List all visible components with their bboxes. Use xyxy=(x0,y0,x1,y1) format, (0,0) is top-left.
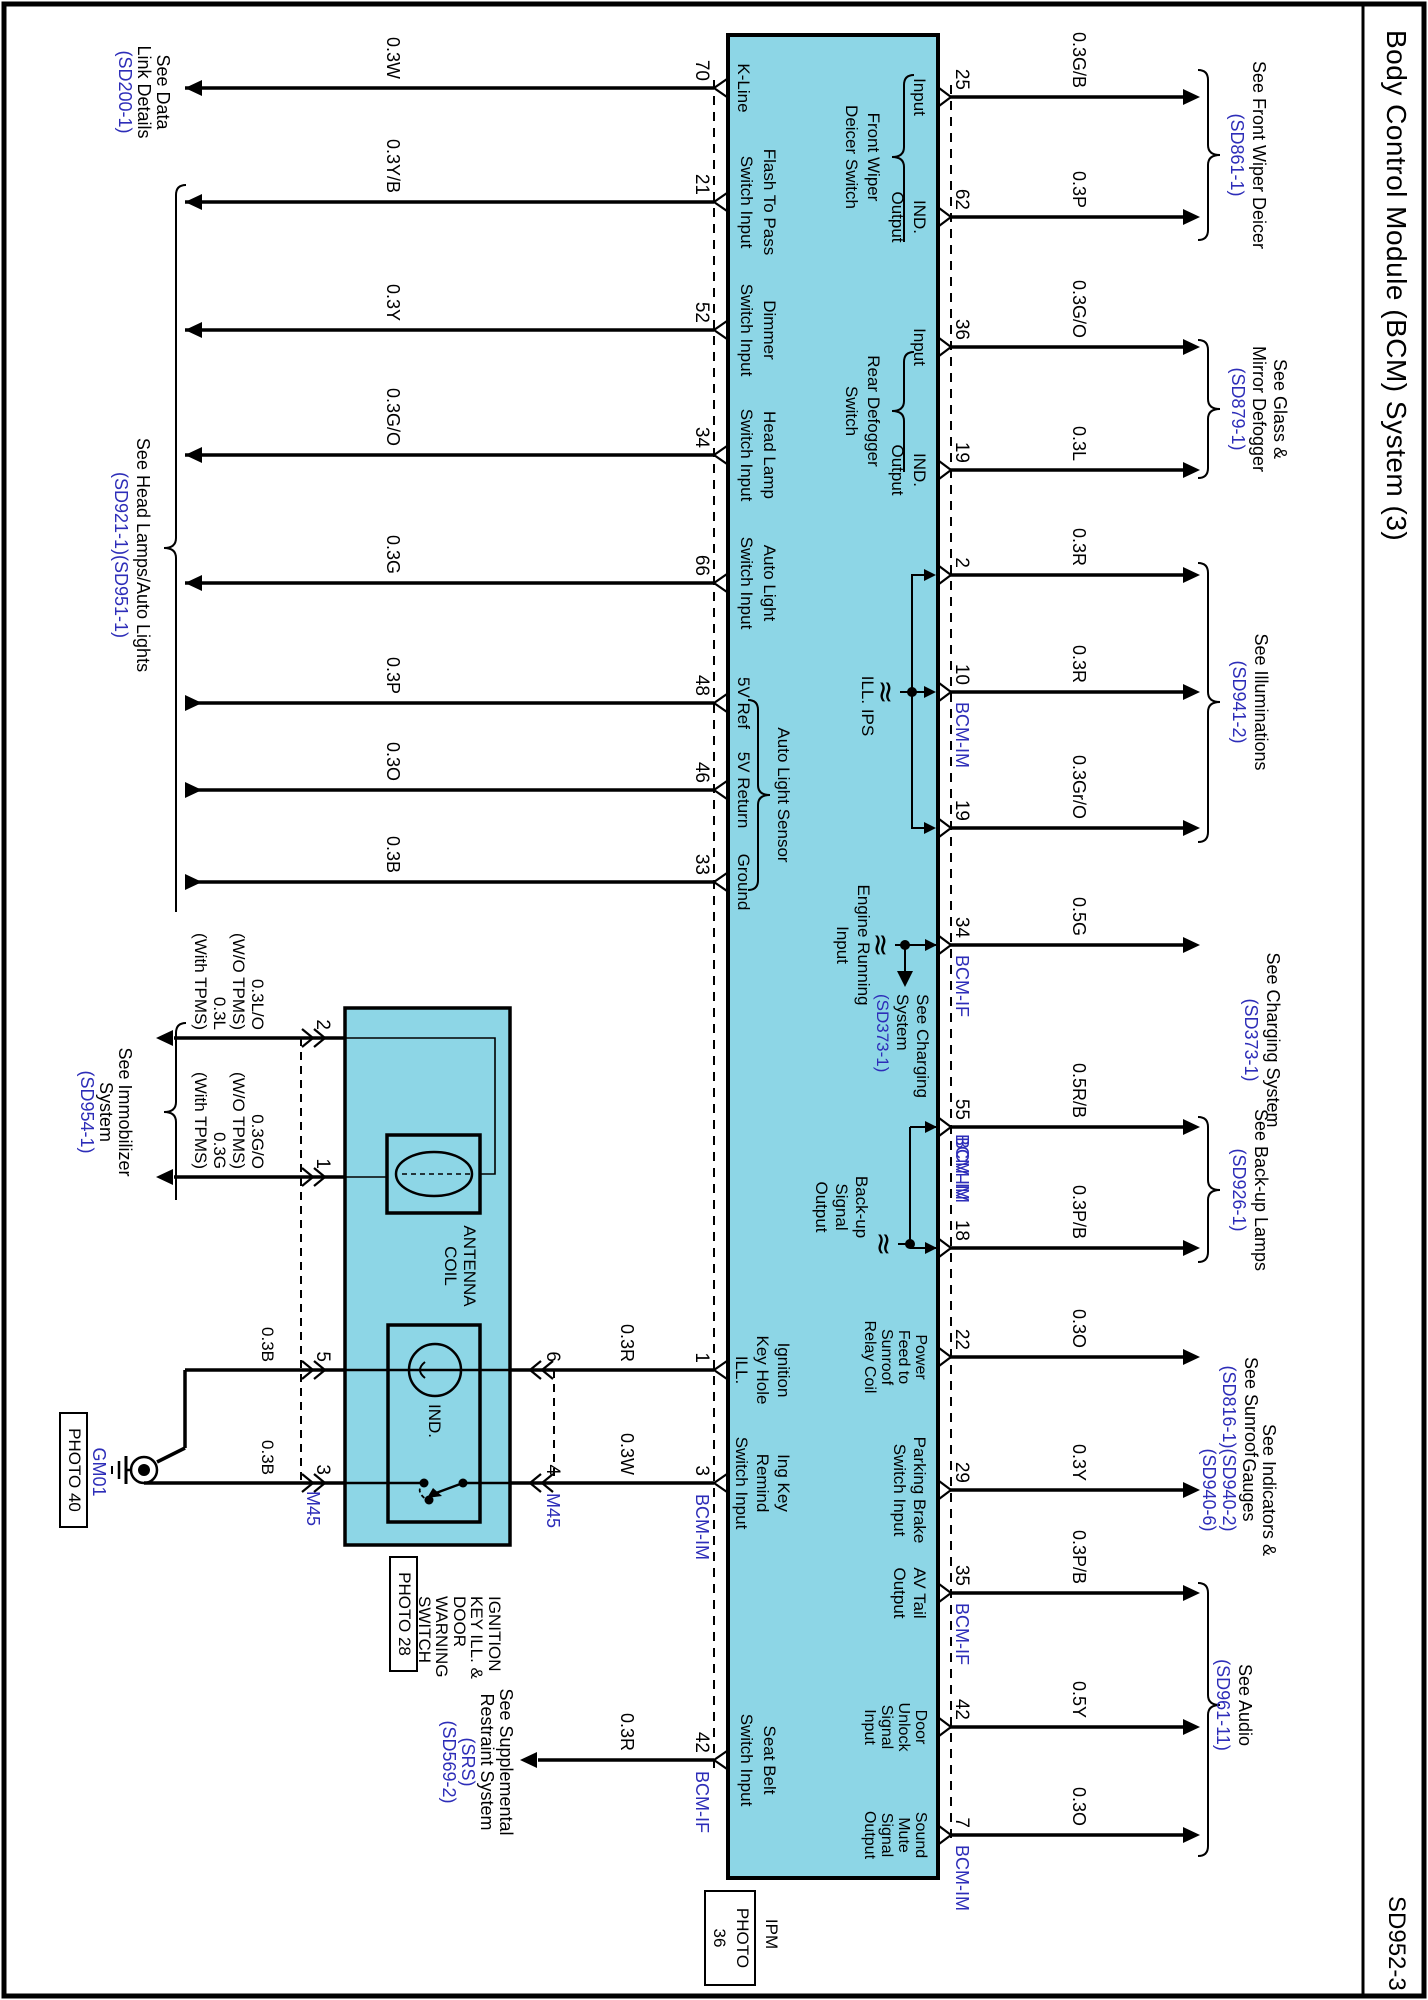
pin-number: 46 xyxy=(691,762,711,783)
shape xyxy=(714,193,727,211)
wire-label: 0.3B xyxy=(258,1440,276,1475)
junction-dot-icon xyxy=(138,1464,150,1476)
pin-function-label: Unlock xyxy=(894,1703,911,1752)
pin-number: 10 xyxy=(951,664,971,685)
wire-label: 0.3P xyxy=(1069,171,1088,208)
arrowhead-icon xyxy=(1183,1827,1200,1843)
wire-label: 0.3R xyxy=(1069,645,1088,683)
module-internal-label: Input xyxy=(833,926,851,964)
wire-label: 0.3G/O xyxy=(248,1114,266,1169)
wire-label: 0.3Y/B xyxy=(383,139,402,193)
connector-label: M45 xyxy=(303,1491,322,1526)
wire-label: 0.3G/O xyxy=(1069,280,1088,338)
pin-function-label: Sunroof xyxy=(877,1329,894,1385)
pin-function-label: Signal xyxy=(877,1705,894,1749)
shape xyxy=(164,185,186,912)
diagram-stage: ≈≈≈ Body Control Module (BCM) System (3)… xyxy=(0,0,1428,2000)
pin-number: 52 xyxy=(691,302,711,323)
pin-function-label: Output xyxy=(888,191,906,242)
see-reference-label: Gauges xyxy=(1239,1458,1258,1521)
photo-label: 36 xyxy=(707,1896,730,1980)
arrowhead-icon xyxy=(185,575,202,591)
module-internal-label: Switch xyxy=(842,386,860,436)
module-internal-label: ILL. IPS xyxy=(858,676,876,736)
see-reference-label: (SD569-2) xyxy=(439,1720,458,1803)
arrowhead-icon xyxy=(1183,1119,1200,1135)
module-internal-label: Back-up xyxy=(852,1176,870,1238)
see-reference-label: (SD921-1)(SD951-1) xyxy=(111,472,130,638)
see-reference-label: See Glass & xyxy=(1270,359,1289,459)
wire-label: 0.5Y xyxy=(1069,1681,1088,1718)
photo-28-box: PHOTO 28 xyxy=(389,1556,418,1672)
see-reference-label: See Back-up Lamps xyxy=(1251,1109,1270,1271)
arrowhead-icon xyxy=(185,874,202,890)
see-reference-label: See Sunroof xyxy=(1241,1357,1260,1457)
pin-function-label: Auto Light xyxy=(760,545,778,622)
arrowhead-icon xyxy=(1183,462,1200,478)
see-reference-label: Link Details xyxy=(134,45,153,138)
shape xyxy=(939,1481,951,1499)
pin-number: 34 xyxy=(691,427,711,448)
ind-bulb-label: IND. xyxy=(425,1404,443,1438)
wire-label: 0.3G/B xyxy=(1069,32,1088,88)
see-reference-label: See Illuminations xyxy=(1251,633,1270,770)
wire xyxy=(157,1448,185,1462)
wire-label: 0.3R xyxy=(1069,528,1088,566)
page-title: Body Control Module (BCM) System (3) xyxy=(1380,30,1412,541)
pin-number: 19 xyxy=(951,442,971,463)
ignition-switch-assembly-box xyxy=(345,1008,510,1545)
shape xyxy=(714,1361,727,1379)
see-reference-label: See Supplemental xyxy=(496,1688,515,1835)
antenna-coil-label: COIL xyxy=(441,1246,459,1286)
see-reference-label: See Front Wiper Deicer xyxy=(1249,61,1268,249)
pin-function-label: Input xyxy=(860,1709,877,1745)
shape xyxy=(939,936,951,954)
pin-function-label: Switch Input xyxy=(737,156,755,249)
pin-function-label: Feed to xyxy=(894,1330,911,1384)
see-reference-label: (SD816-1) xyxy=(1219,1365,1238,1448)
pin-number: 35 xyxy=(951,1565,971,1586)
arrowhead-icon xyxy=(185,695,202,711)
wire-label: 0.3G xyxy=(383,535,402,574)
pin-function-label: Switch Input xyxy=(737,409,755,502)
pin-number: 1 xyxy=(691,1352,711,1363)
shape xyxy=(714,321,727,339)
wire-label: (With TPMS) xyxy=(191,1072,209,1169)
arrowhead-icon xyxy=(185,447,202,463)
shape xyxy=(714,781,727,799)
see-reference-label: (SD941-2) xyxy=(1229,660,1248,743)
wire-label: 0.3O xyxy=(1069,1309,1088,1348)
pin-number: 18 xyxy=(951,1220,971,1241)
see-reference-label: See Data xyxy=(153,54,172,129)
pin-function-label: Dimmer xyxy=(760,300,778,360)
arrowhead-icon xyxy=(156,1030,173,1046)
module-internal-label: Deicer Switch xyxy=(842,105,860,209)
shape xyxy=(714,79,727,97)
pin-function-label: IND. xyxy=(910,200,928,234)
wire-label: 0.3P/B xyxy=(1069,1530,1088,1584)
wire-label: 0.3G/O xyxy=(383,388,402,446)
arrowhead-icon xyxy=(156,1169,173,1185)
pin-function-label: 5V Return xyxy=(734,752,752,829)
shape xyxy=(939,1239,951,1257)
antenna-coil-label: ANTENNA xyxy=(460,1225,478,1306)
wiring-diagram-page: ≈≈≈ Body Control Module (BCM) System (3)… xyxy=(0,0,1428,2000)
wire-label: 0.5R/B xyxy=(1069,1063,1088,1118)
pin-number: 22 xyxy=(951,1329,971,1350)
wire-label: 0.3R xyxy=(617,1713,636,1751)
pin-number: 36 xyxy=(951,319,971,340)
wire-label: 0.3P xyxy=(383,657,402,694)
see-reference-label: (SD373-1) xyxy=(1241,998,1260,1081)
arrowhead-icon xyxy=(1183,1585,1200,1601)
shape xyxy=(939,88,951,106)
see-reference-label: System xyxy=(96,1082,115,1142)
pin-number: 6 xyxy=(542,1351,562,1362)
charging-branch-note: See Charging xyxy=(913,994,931,1098)
connector-label: BCM-IM xyxy=(692,1494,711,1560)
pin-function-label: Seat Belt xyxy=(760,1726,778,1795)
pin-function-label: Power xyxy=(911,1334,928,1379)
pin-function-label: Input xyxy=(910,328,928,366)
module-internal-label: Engine Running xyxy=(854,885,872,1006)
shape xyxy=(714,574,727,592)
wire-label: 0.3B xyxy=(258,1327,276,1362)
connector-label: BCM-IF xyxy=(952,1603,971,1665)
shape xyxy=(939,566,951,584)
see-reference-label: (SD879-1) xyxy=(1228,367,1247,450)
arrowhead-icon xyxy=(520,1752,537,1768)
pin-function-label: K-Line xyxy=(734,63,752,112)
pin-function-label: Output xyxy=(860,1811,877,1859)
arrowhead-icon xyxy=(1183,1349,1200,1365)
pin-function-label: AV Tail xyxy=(910,1567,928,1618)
pin-function-label: Switch Input xyxy=(737,284,755,377)
connector-label: BCM-IM xyxy=(952,702,971,768)
arrowhead-icon xyxy=(1183,1482,1200,1498)
see-reference-label: See Immobilizer xyxy=(115,1047,134,1176)
arrowhead-icon xyxy=(1183,937,1200,953)
see-reference-label: (SD954-1) xyxy=(77,1070,96,1153)
pin-function-label: Remind xyxy=(753,1454,771,1513)
pin-function-label: Ing Key xyxy=(774,1454,792,1512)
photo-label: PHOTO 28 xyxy=(392,1562,415,1666)
see-reference-label: (SD940-2) xyxy=(1219,1448,1238,1531)
pin-function-label: Parking Brake xyxy=(910,1437,928,1544)
pin-function-label: Ignition xyxy=(774,1343,792,1398)
shape xyxy=(939,819,951,837)
see-reference-label: See Charging System xyxy=(1263,952,1282,1127)
wire-label: 0.3R xyxy=(617,1324,636,1362)
wire-label: 0.5G xyxy=(1069,897,1088,936)
pin-number: 2 xyxy=(951,557,971,568)
arrowhead-icon xyxy=(185,194,202,210)
pin-function-label: Output xyxy=(888,444,906,495)
photo-36-box: PHOTO36 xyxy=(704,1890,756,1986)
charging-branch-note: System xyxy=(893,994,911,1051)
see-reference-label: Restraint System xyxy=(477,1693,496,1830)
wire-label: 0.3O xyxy=(1069,1787,1088,1826)
switch-assembly-label: WARNING xyxy=(433,1596,451,1678)
connector-label: BCM-IM xyxy=(952,1845,971,1911)
pin-function-label: IND. xyxy=(910,453,928,487)
pin-number: 2 xyxy=(312,1019,332,1030)
shape xyxy=(1198,70,1220,240)
charging-branch-note: (SD373-1) xyxy=(873,994,891,1072)
pin-number: 3 xyxy=(691,1465,711,1476)
pin-number: 48 xyxy=(691,675,711,696)
pin-function-label: Door xyxy=(911,1710,928,1745)
pin-number: 3 xyxy=(312,1464,332,1475)
wire-label: 0.3W xyxy=(617,1433,636,1475)
see-reference-label: Mirror Defogger xyxy=(1249,346,1268,472)
pin-number: 42 xyxy=(691,1732,711,1753)
shape xyxy=(939,683,951,701)
pin-function-label: Key Hole xyxy=(753,1336,771,1405)
shape xyxy=(714,873,727,891)
pin-function-label: Ground xyxy=(734,854,752,911)
wire-label: 0.3P/B xyxy=(1069,1185,1088,1239)
pin-number: 29 xyxy=(951,1462,971,1483)
arrowhead-icon xyxy=(185,782,202,798)
shape xyxy=(939,1718,951,1736)
pin-function-label: 5V Ref xyxy=(734,677,752,729)
photo-label: PHOTO 40 xyxy=(62,1418,85,1522)
module-internal-label: Auto Light Sensor xyxy=(774,727,792,862)
pin-number: 55 xyxy=(951,1099,971,1120)
connector-label: M45 xyxy=(543,1493,562,1528)
pin-number: 34 xyxy=(951,917,971,938)
wire-label: (W/O TPMS) xyxy=(229,1072,247,1169)
wire-label: (W/O TPMS) xyxy=(229,933,247,1030)
see-reference-label: See Indicators & xyxy=(1259,1424,1278,1556)
arrowhead-icon xyxy=(1183,1240,1200,1256)
see-reference-label: (SD926-1) xyxy=(1229,1148,1248,1231)
arrowhead-icon xyxy=(185,322,202,338)
wire-label: 0.3Y xyxy=(383,284,402,321)
pin-function-label: Signal xyxy=(877,1813,894,1857)
see-reference-label: (SD861-1) xyxy=(1227,113,1246,196)
pin-number: 1 xyxy=(312,1158,332,1169)
arrowhead-icon xyxy=(1183,89,1200,105)
see-reference-label: (SD961-11) xyxy=(1213,1659,1232,1751)
pin-number: 66 xyxy=(691,555,711,576)
module-internal-label: Signal xyxy=(832,1183,850,1230)
shape xyxy=(714,1751,727,1769)
pin-function-label: Switch Input xyxy=(890,1444,908,1537)
wire-label: 0.3L xyxy=(210,997,228,1030)
see-reference-label: (SD200-1) xyxy=(115,50,134,133)
pin-number: 70 xyxy=(691,60,711,81)
pin-function-label: Head Lamp xyxy=(760,411,778,499)
connector-label: BCM-IM xyxy=(952,1134,971,1200)
connector-label: BCM-IF xyxy=(952,955,971,1017)
page-code: SD952-3 xyxy=(1382,1896,1410,1991)
module-internal-label: Rear Defogger xyxy=(864,355,882,467)
arrowhead-icon xyxy=(1183,1719,1200,1735)
wire-label: 0.3W xyxy=(383,37,402,79)
ground-id-label: GM01 xyxy=(89,1447,108,1496)
arrowhead-icon xyxy=(1183,339,1200,355)
shape xyxy=(1198,563,1220,842)
pin-number: 4 xyxy=(542,1464,562,1475)
wire-label: 0.3O xyxy=(383,742,402,781)
shape xyxy=(939,461,951,479)
pin-function-label: ILL. xyxy=(732,1356,750,1384)
switch-assembly-label: KEY ILL. & xyxy=(468,1596,486,1679)
wire-label: 0.3L/O xyxy=(248,979,266,1030)
wire-label: 0.3Y xyxy=(1069,1444,1088,1481)
pin-function-label: Sound xyxy=(911,1812,928,1858)
arrowhead-icon xyxy=(1183,209,1200,225)
see-reference-label: (SRS) xyxy=(458,1738,477,1787)
pin-number: 42 xyxy=(951,1699,971,1720)
wire-label: 0.3G xyxy=(210,1132,228,1169)
shape xyxy=(939,208,951,226)
wire-label: 0.3Gr/O xyxy=(1069,755,1088,819)
illumination-squiggle-icon: ≈ xyxy=(866,1231,901,1256)
photo-label: PHOTO xyxy=(730,1896,753,1980)
pin-function-label: Switch Input xyxy=(737,537,755,630)
shape xyxy=(714,694,727,712)
shape xyxy=(939,338,951,356)
pin-number: 19 xyxy=(951,800,971,821)
wire-label: (With TPMS) xyxy=(191,933,209,1030)
shape xyxy=(1198,340,1220,478)
pin-function-label: Input xyxy=(910,78,928,116)
see-reference-label: See Audio xyxy=(1235,1664,1254,1746)
pin-function-label: Flash To Pass xyxy=(760,149,778,255)
photo-40-box: PHOTO 40 xyxy=(59,1412,88,1528)
pin-function-label: Mute xyxy=(894,1817,911,1853)
arrowhead-icon xyxy=(1183,567,1200,583)
module-internal-label: Front Wiper xyxy=(864,113,882,202)
shape xyxy=(939,1826,951,1844)
arrowhead-icon xyxy=(1183,684,1200,700)
see-reference-label: (SD940-6) xyxy=(1199,1448,1218,1531)
shape xyxy=(939,1118,951,1136)
title-bar: Body Control Module (BCM) System (3) SD9… xyxy=(1363,0,1428,2000)
pin-function-label: Switch Input xyxy=(737,1714,755,1807)
shape xyxy=(1198,1117,1220,1262)
pin-number: 25 xyxy=(951,69,971,90)
pin-number: 33 xyxy=(691,854,711,875)
arrowhead-icon xyxy=(185,80,202,96)
pin-number: 62 xyxy=(951,189,971,210)
module-internal-label: Output xyxy=(812,1181,830,1232)
pin-number: 21 xyxy=(691,174,711,195)
wire-label: 0.3B xyxy=(383,836,402,873)
shape xyxy=(939,1584,951,1602)
shape xyxy=(714,446,727,464)
arrowhead-icon xyxy=(1183,820,1200,836)
pin-number: 5 xyxy=(312,1351,332,1362)
pin-number: 7 xyxy=(951,1817,971,1828)
wire-label: 0.3L xyxy=(1069,426,1088,461)
connector-label: BCM-IF xyxy=(692,1771,711,1833)
switch-assembly-label: IGNITION xyxy=(485,1596,503,1672)
pin-function-label: Output xyxy=(890,1567,908,1618)
see-reference-label: See Head Lamps/Auto Lights xyxy=(133,438,152,672)
pin-function-label: Relay Coil xyxy=(860,1321,877,1394)
ipm-label: IPM xyxy=(762,1919,780,1949)
shape xyxy=(939,1348,951,1366)
pin-function-label: Switch Input xyxy=(732,1437,750,1530)
shape xyxy=(714,1474,727,1492)
switch-assembly-label: DOOR xyxy=(450,1596,468,1647)
